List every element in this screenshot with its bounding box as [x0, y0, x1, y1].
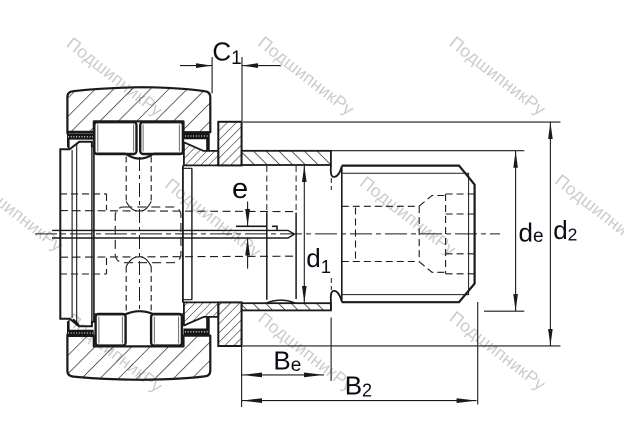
svg-text:ПодшипникРу: ПодшипникРу: [446, 307, 550, 394]
svg-text:ПодшипникРу: ПодшипникРу: [254, 32, 358, 119]
svg-text:d2: d2: [553, 215, 577, 245]
svg-text:C1: C1: [212, 37, 241, 70]
svg-text:ПодшипникРу: ПодшипникРу: [161, 174, 265, 261]
svg-text:d1: d1: [306, 243, 331, 277]
svg-text:ПодшипникРу: ПодшипникРу: [0, 168, 67, 255]
svg-text:ПодшипникРу: ПодшипникРу: [254, 308, 358, 395]
svg-text:e: e: [232, 173, 248, 205]
svg-text:de: de: [519, 217, 544, 247]
svg-text:B2: B2: [345, 371, 372, 401]
svg-text:ПодшипникРу: ПодшипникРу: [446, 32, 550, 119]
svg-text:ПодшипникРу: ПодшипникРу: [356, 172, 460, 259]
